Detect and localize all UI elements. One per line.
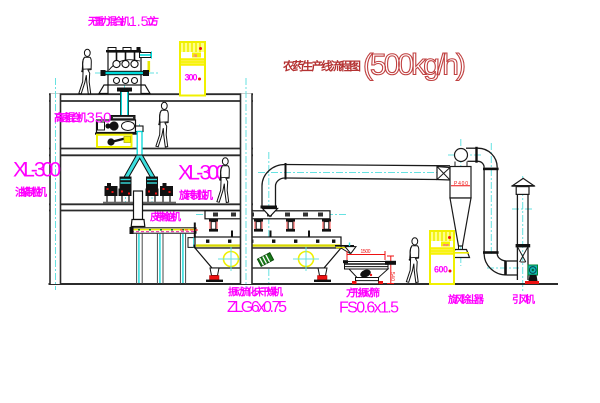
svg-text:300: 300	[185, 73, 198, 83]
svg-text:油桨制粒机: 油桨制粒机	[15, 186, 48, 199]
svg-text:引风机: 引风机	[512, 293, 535, 306]
svg-text:振动流化床干燥机: 振动流化床干燥机	[228, 286, 283, 299]
svg-text:立方: 立方	[146, 15, 159, 28]
svg-text:600: 600	[434, 265, 448, 275]
svg-text:(500kg/h): (500kg/h)	[363, 49, 466, 82]
svg-text:高速混合机: 高速混合机	[54, 111, 88, 124]
svg-text:旋转制粒机: 旋转制粒机	[178, 189, 214, 202]
svg-text:方形振动筛: 方形振动筛	[346, 287, 380, 300]
svg-text:350: 350	[87, 110, 112, 127]
svg-text:皮带输送机: 皮带输送机	[149, 211, 181, 224]
svg-text:旋风除尘器: 旋风除尘器	[447, 293, 485, 306]
svg-text:540: 540	[389, 272, 395, 281]
svg-text:m: m	[194, 53, 198, 58]
svg-text:1500: 1500	[361, 249, 371, 255]
svg-text:无重力混合机: 无重力混合机	[87, 15, 130, 28]
svg-text:XL-300: XL-300	[13, 159, 61, 182]
svg-text:FS0.6x1.5: FS0.6x1.5	[339, 300, 399, 317]
svg-text:ww: ww	[443, 242, 449, 247]
svg-text:农药生产线流程图: 农药生产线流程图	[282, 59, 361, 73]
svg-text:P400: P400	[454, 181, 468, 187]
svg-text:ZLG6x0.75: ZLG6x0.75	[227, 299, 287, 316]
svg-text:XL-300: XL-300	[178, 162, 227, 185]
